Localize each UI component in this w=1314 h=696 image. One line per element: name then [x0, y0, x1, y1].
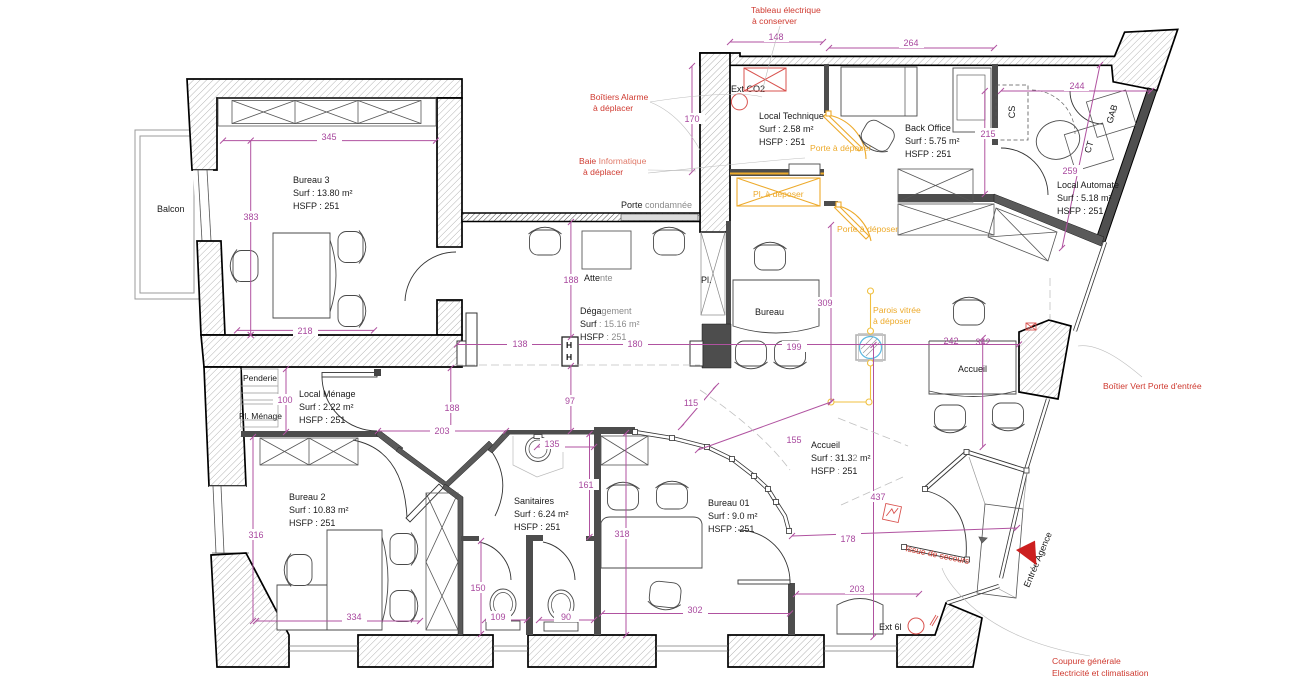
svg-text:218: 218: [297, 326, 312, 336]
svg-text:109: 109: [490, 612, 505, 622]
svg-text:Local Technique: Local Technique: [759, 111, 824, 121]
svg-text:HSFP : 251: HSFP : 251: [293, 201, 339, 211]
svg-text:Surf : 10.83 m²: Surf : 10.83 m²: [289, 505, 349, 515]
svg-text:242: 242: [943, 336, 958, 346]
svg-text:Parois vitrée: Parois vitrée: [873, 305, 921, 315]
svg-text:Porte condamnée: Porte condamnée: [621, 200, 692, 210]
svg-text:259: 259: [1062, 166, 1077, 176]
svg-text:Ext 6l: Ext 6l: [879, 622, 902, 632]
svg-text:HSFP : 251: HSFP : 251: [1057, 206, 1103, 216]
svg-text:Balcon: Balcon: [157, 204, 185, 214]
svg-text:HSFP : 251: HSFP : 251: [299, 415, 345, 425]
svg-text:HSFP : 251: HSFP : 251: [708, 524, 754, 534]
svg-text:Electricité et climatisation: Electricité et climatisation: [1052, 668, 1149, 678]
svg-text:161: 161: [578, 480, 593, 490]
svg-text:199: 199: [786, 342, 801, 352]
svg-text:Surf : 5.18 m²: Surf : 5.18 m²: [1057, 193, 1112, 203]
svg-text:Pl. à déposer: Pl. à déposer: [753, 189, 804, 199]
svg-text:115: 115: [684, 398, 698, 408]
svg-text:Accueil: Accueil: [958, 364, 987, 374]
svg-text:Surf : 13.80 m²: Surf : 13.80 m²: [293, 188, 353, 198]
svg-text:178: 178: [840, 534, 855, 544]
svg-text:Surf : 2.58 m²: Surf : 2.58 m²: [759, 124, 814, 134]
svg-text:135: 135: [544, 439, 559, 449]
svg-text:H: H: [566, 352, 572, 362]
svg-text:244: 244: [1069, 81, 1084, 91]
svg-text:H: H: [566, 340, 572, 350]
svg-text:Porte à déposer: Porte à déposer: [810, 143, 871, 153]
svg-text:à déplacer: à déplacer: [583, 167, 623, 177]
svg-text:Attente: Attente: [584, 273, 613, 283]
svg-text:Dégagement: Dégagement: [580, 306, 632, 316]
svg-text:188: 188: [563, 275, 578, 285]
svg-text:Local Ménage: Local Ménage: [299, 389, 356, 399]
svg-text:à déposer: à déposer: [873, 316, 911, 326]
svg-text:97: 97: [565, 396, 575, 406]
svg-text:383: 383: [243, 212, 258, 222]
svg-text:316: 316: [248, 530, 263, 540]
svg-text:264: 264: [903, 38, 918, 48]
svg-text:334: 334: [346, 612, 361, 622]
svg-text:Tableau électrique: Tableau électrique: [751, 5, 821, 15]
svg-text:HSFP : 251: HSFP : 251: [514, 522, 560, 532]
svg-text:à conserver: à conserver: [752, 16, 797, 26]
svg-text:Porte à déposer: Porte à déposer: [837, 224, 898, 234]
svg-text:HSFP : 251: HSFP : 251: [580, 332, 626, 342]
svg-text:Surf : 15.16 m²: Surf : 15.16 m²: [580, 319, 640, 329]
svg-text:Back Office: Back Office: [905, 123, 951, 133]
svg-text:100: 100: [277, 395, 292, 405]
svg-text:302: 302: [687, 605, 702, 615]
svg-text:Penderie: Penderie: [243, 373, 277, 383]
svg-text:188: 188: [444, 403, 459, 413]
svg-text:342: 342: [975, 337, 990, 347]
svg-text:437: 437: [870, 492, 885, 502]
svg-text:Coupure générale: Coupure générale: [1052, 656, 1121, 666]
svg-text:Bureau 01: Bureau 01: [708, 498, 750, 508]
svg-text:Surf : 2.22 m²: Surf : 2.22 m²: [299, 402, 354, 412]
svg-text:Pl. Ménage: Pl. Ménage: [239, 411, 282, 421]
svg-text:HSFP : 251: HSFP : 251: [905, 149, 951, 159]
svg-text:HSFP : 251: HSFP : 251: [759, 137, 805, 147]
svg-text:Boîtiers Alarme: Boîtiers Alarme: [590, 92, 648, 102]
svg-text:318: 318: [614, 529, 629, 539]
svg-text:155: 155: [786, 435, 801, 445]
svg-text:Surf : 31.32 m²: Surf : 31.32 m²: [811, 453, 871, 463]
svg-text:Baie Informatique: Baie Informatique: [579, 156, 647, 166]
svg-text:215: 215: [980, 129, 995, 139]
svg-text:HSFP : 251: HSFP : 251: [811, 466, 857, 476]
svg-text:Sanitaires: Sanitaires: [514, 496, 555, 506]
svg-text:Surf : 5.75 m²: Surf : 5.75 m²: [905, 136, 960, 146]
svg-text:138: 138: [512, 339, 527, 349]
svg-text:90: 90: [561, 612, 571, 622]
svg-text:150: 150: [470, 583, 485, 593]
svg-text:Bureau: Bureau: [755, 307, 784, 317]
svg-text:Bureau 3: Bureau 3: [293, 175, 330, 185]
svg-text:Accueil: Accueil: [811, 440, 840, 450]
svg-text:203: 203: [434, 426, 449, 436]
svg-text:Bureau 2: Bureau 2: [289, 492, 326, 502]
svg-text:CS: CS: [1007, 106, 1017, 119]
svg-text:Pl.: Pl.: [701, 275, 712, 285]
svg-text:Boîtier Vert Porte d'entrée: Boîtier Vert Porte d'entrée: [1103, 381, 1202, 391]
svg-text:345: 345: [321, 132, 336, 142]
svg-text:à déplacer: à déplacer: [593, 103, 633, 113]
svg-text:Local Automate: Local Automate: [1057, 180, 1119, 190]
svg-text:Surf : 9.0 m²: Surf : 9.0 m²: [708, 511, 758, 521]
svg-text:180: 180: [627, 339, 642, 349]
svg-text:Surf : 6.24 m²: Surf : 6.24 m²: [514, 509, 569, 519]
svg-text:309: 309: [817, 298, 832, 308]
svg-text:203: 203: [849, 584, 864, 594]
svg-text:HSFP : 251: HSFP : 251: [289, 518, 335, 528]
svg-text:170: 170: [684, 114, 699, 124]
